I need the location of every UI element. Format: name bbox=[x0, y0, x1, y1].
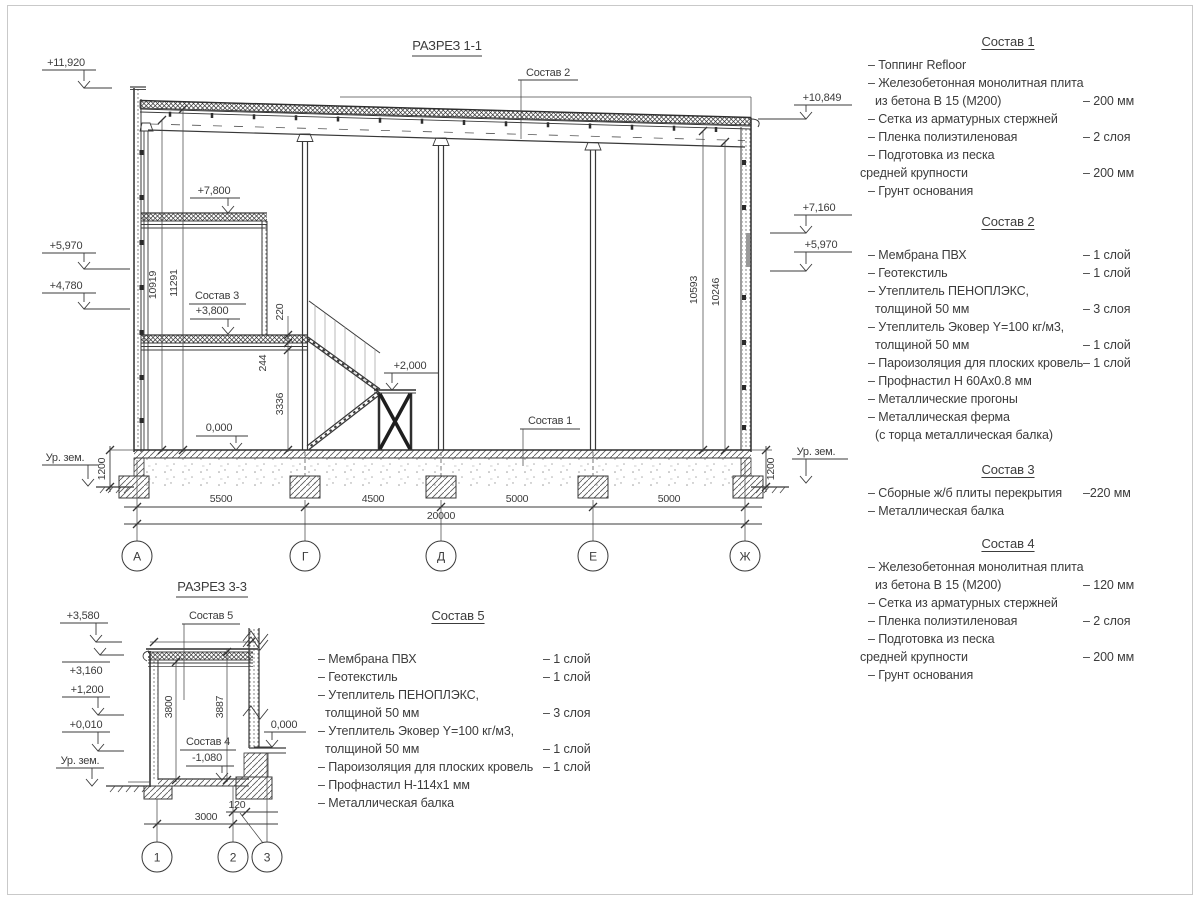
dim-11291: 11291 bbox=[168, 269, 180, 297]
right-wall bbox=[741, 118, 751, 453]
composition-item: – Утеплитель ПЕНОПЛЭКС, bbox=[858, 284, 1158, 302]
composition-item-text: – Пароизоляция для плоских кровель bbox=[318, 760, 533, 775]
composition-item-text: – Утеплитель ПЕНОПЛЭКС, bbox=[868, 284, 1029, 299]
dim-120: 120 bbox=[229, 799, 246, 811]
axis-label-e: Е bbox=[589, 550, 597, 564]
ground-level-label-right: Ур. зем. bbox=[797, 446, 836, 458]
dim-220: 220 bbox=[274, 303, 286, 320]
composition-item-text: – Подготовка из песка bbox=[868, 148, 994, 163]
composition-item-text: – Утеплитель Эковер Y=100 кг/м3, bbox=[318, 724, 514, 739]
dim-10246: 10246 bbox=[710, 278, 722, 307]
composition-item: толщиной 50 мм– 3 слоя bbox=[858, 302, 1158, 320]
dim-3800: 3800 bbox=[163, 695, 175, 718]
section-3-3-title: РАЗРЕЗ 3-3 bbox=[177, 579, 247, 594]
composition-item-text: толщиной 50 мм bbox=[325, 742, 419, 757]
composition-item: – Утеплитель ПЕНОПЛЭКС, bbox=[308, 688, 608, 706]
composition-item: – Грунт основания bbox=[858, 184, 1158, 202]
composition-item: – Подготовка из песка bbox=[858, 632, 1158, 650]
composition-item-value: – 200 мм bbox=[1083, 94, 1134, 109]
composition-item-text: – Пленка полиэтиленовая bbox=[868, 130, 1017, 145]
composition-block-2: Состав 2 – Мембрана ПВХ– 1 слой– Геотекс… bbox=[858, 210, 1158, 446]
composition-item-text: средней крупности bbox=[860, 166, 968, 181]
composition-item-text: – Пленка полиэтиленовая bbox=[868, 614, 1017, 629]
section-3-3-drawing: РАЗРЕЗ 3-3 bbox=[56, 579, 306, 872]
section-1-1-drawing: 10919 11291 10593 10246 220 244 3336 120… bbox=[42, 38, 852, 571]
dim-1200-right: 1200 bbox=[765, 457, 777, 480]
label-sostav-2: Состав 2 bbox=[526, 67, 570, 79]
composition-item-text: – Профнастил Н-114х1 мм bbox=[318, 778, 470, 793]
axis-label-3: 3 bbox=[264, 851, 271, 865]
composition-item: из бетона В 15 (М200)– 200 мм bbox=[858, 94, 1158, 112]
axis-label-d: Д bbox=[437, 550, 445, 564]
label-sostav-3: Состав 3 bbox=[195, 290, 239, 302]
composition-item-text: из бетона В 15 (М200) bbox=[875, 94, 1001, 109]
composition-item-text: (с торца металлическая балка) bbox=[875, 428, 1053, 443]
axis-label-a: А bbox=[133, 550, 141, 564]
elevation-5970-left: +5,970 bbox=[50, 240, 83, 252]
composition-item: – Металлическая балка bbox=[308, 796, 608, 814]
composition-item-value: – 200 мм bbox=[1083, 650, 1134, 665]
composition-item-value: – 2 слоя bbox=[1083, 614, 1130, 629]
composition-item: – Металлические прогоны bbox=[858, 392, 1158, 410]
composition-item-text: толщиной 50 мм bbox=[875, 302, 969, 317]
composition-item-text: – Грунт основания bbox=[868, 668, 973, 683]
composition-item: – Грунт основания bbox=[858, 668, 1158, 686]
dim-5000-b: 5000 bbox=[658, 493, 681, 505]
axis-label-zh: Ж bbox=[740, 550, 751, 564]
composition-item-value: – 1 слой bbox=[1083, 266, 1131, 281]
composition-item-text: – Подготовка из песка bbox=[868, 632, 994, 647]
composition-item-value: – 200 мм bbox=[1083, 166, 1134, 181]
composition-item: – Мембрана ПВХ– 1 слой bbox=[308, 652, 608, 670]
composition-item-text: толщиной 50 мм bbox=[875, 338, 969, 353]
composition-rows: – Мембрана ПВХ– 1 слой– Геотекстиль– 1 с… bbox=[858, 248, 1158, 446]
dim-3000: 3000 bbox=[195, 811, 218, 823]
floor-foundation bbox=[96, 450, 789, 498]
composition-item: средней крупности– 200 мм bbox=[858, 650, 1158, 668]
left-wall bbox=[130, 87, 153, 452]
composition-item: – Пароизоляция для плоских кровель– 1 сл… bbox=[308, 760, 608, 778]
composition-item: – Утеплитель Эковер Y=100 кг/м3, bbox=[308, 724, 608, 742]
composition-item: – Железобетонная монолитная плита bbox=[858, 560, 1158, 578]
composition-item: – Пленка полиэтиленовая– 2 слоя bbox=[858, 130, 1158, 148]
composition-rows: – Мембрана ПВХ– 1 слой– Геотекстиль– 1 с… bbox=[308, 652, 608, 814]
composition-item: – Пленка полиэтиленовая– 2 слоя bbox=[858, 614, 1158, 632]
composition-item-value: –220 мм bbox=[1083, 486, 1131, 501]
elevation-0000-33: 0,000 bbox=[271, 719, 298, 731]
pit-labels: Состав 5 Состав 4 bbox=[180, 610, 240, 750]
composition-item: – Профнастил Н-114х1 мм bbox=[308, 778, 608, 796]
elevation-3580: +3,580 bbox=[67, 610, 100, 622]
composition-item-text: – Мембрана ПВХ bbox=[868, 248, 966, 263]
elevation-10849: +10,849 bbox=[803, 92, 842, 104]
composition-item-text: – Геотекстиль bbox=[318, 670, 398, 685]
composition-item-text: – Металлическая ферма bbox=[868, 410, 1010, 425]
dim-3887: 3887 bbox=[214, 695, 226, 718]
elevation-11920: +11,920 bbox=[47, 57, 85, 69]
composition-item-text: – Утеплитель ПЕНОПЛЭКС, bbox=[318, 688, 479, 703]
elevation-7160: +7,160 bbox=[803, 202, 836, 214]
composition-rows: – Топпинг Refloor– Железобетонная моноли… bbox=[858, 58, 1158, 202]
dim-3336: 3336 bbox=[274, 392, 286, 415]
composition-item-text: – Сборные ж/б плиты перекрытия bbox=[868, 486, 1062, 501]
pit-elevation-marks: +3,580 +3,160 +1,200 +0,010 Ур. зем. 0,0… bbox=[56, 610, 306, 786]
composition-item: – Геотекстиль– 1 слой bbox=[858, 266, 1158, 284]
composition-item: – Мембрана ПВХ– 1 слой bbox=[858, 248, 1158, 266]
dim-10919: 10919 bbox=[147, 271, 159, 300]
elevation-3160: +3,160 bbox=[70, 665, 103, 677]
composition-item-value: – 1 слой bbox=[1083, 338, 1131, 353]
dim-5000-a: 5000 bbox=[506, 493, 529, 505]
composition-item-text: – Профнастил Н 60Ах0.8 мм bbox=[868, 374, 1032, 389]
composition-item-value: – 1 слой bbox=[543, 742, 591, 757]
composition-item-value: – 2 слоя bbox=[1083, 130, 1130, 145]
elevation-2000: +2,000 bbox=[394, 360, 427, 372]
composition-item: – Сетка из арматурных стержней bbox=[858, 112, 1158, 130]
dim-10593: 10593 bbox=[688, 276, 700, 305]
composition-item: – Подготовка из песка bbox=[858, 148, 1158, 166]
composition-item: (с торца металлическая балка) bbox=[858, 428, 1158, 446]
composition-rows: – Сборные ж/б плиты перекрытия–220 мм– М… bbox=[858, 486, 1158, 522]
axis-label-2: 2 bbox=[230, 851, 237, 865]
composition-item-text: – Мембрана ПВХ bbox=[318, 652, 416, 667]
pit-structure bbox=[106, 628, 286, 799]
composition-item: – Утеплитель Эковер Y=100 кг/м3, bbox=[858, 320, 1158, 338]
composition-block-4: Состав 4 – Железобетонная монолитная пли… bbox=[858, 532, 1158, 686]
composition-item: – Профнастил Н 60Ах0.8 мм bbox=[858, 374, 1158, 392]
composition-item-text: – Железобетонная монолитная плита bbox=[868, 560, 1083, 575]
drawing-page: 10919 11291 10593 10246 220 244 3336 120… bbox=[0, 0, 1200, 900]
composition-item-text: – Пароизоляция для плоских кровель bbox=[868, 356, 1083, 371]
composition-item: толщиной 50 мм– 1 слой bbox=[308, 742, 608, 760]
axis-label-g: Г bbox=[302, 550, 309, 564]
composition-title: Состав 4 bbox=[858, 532, 1158, 552]
composition-item-text: из бетона В 15 (М200) bbox=[875, 578, 1001, 593]
composition-block-1: Состав 1 – Топпинг Refloor– Железобетонн… bbox=[858, 30, 1158, 202]
composition-item-value: – 3 слоя bbox=[543, 706, 590, 721]
roof-assembly bbox=[140, 97, 759, 147]
ground-level-label-left: Ур. зем. bbox=[46, 452, 85, 464]
composition-item-text: – Сетка из арматурных стержней bbox=[868, 112, 1058, 127]
elevation-0010: +0,010 bbox=[70, 719, 103, 731]
label-sostav-4: Состав 4 bbox=[186, 736, 230, 748]
composition-item: средней крупности– 200 мм bbox=[858, 166, 1158, 184]
composition-block-3: Состав 3 – Сборные ж/б плиты перекрытия–… bbox=[858, 458, 1158, 522]
label-sostav-1: Состав 1 bbox=[528, 415, 572, 427]
composition-item-value: – 3 слоя bbox=[1083, 302, 1130, 317]
composition-item-value: – 1 слой bbox=[543, 760, 591, 775]
dim-1200-left: 1200 bbox=[96, 457, 108, 480]
composition-item: из бетона В 15 (М200)– 120 мм bbox=[858, 578, 1158, 596]
elevation-7800: +7,800 bbox=[198, 185, 231, 197]
composition-item: толщиной 50 мм– 3 слоя bbox=[308, 706, 608, 724]
composition-item-value: – 1 слой bbox=[1083, 248, 1131, 263]
composition-item: – Топпинг Refloor bbox=[858, 58, 1158, 76]
elevation-4780: +4,780 bbox=[50, 280, 83, 292]
elevation-5970-right: +5,970 bbox=[805, 239, 838, 251]
composition-item-text: – Металлические прогоны bbox=[868, 392, 1018, 407]
roof-drip-hook bbox=[751, 119, 759, 127]
composition-item-text: – Грунт основания bbox=[868, 184, 973, 199]
composition-title: Состав 5 bbox=[308, 604, 608, 624]
composition-item-value: – 1 слой bbox=[543, 670, 591, 685]
composition-item: – Металлическая балка bbox=[858, 504, 1158, 522]
label-sostav-5: Состав 5 bbox=[189, 610, 233, 622]
ground-level-label-33: Ур. зем. bbox=[61, 755, 100, 767]
composition-item-text: – Геотекстиль bbox=[868, 266, 948, 281]
composition-title: Состав 2 bbox=[858, 210, 1158, 230]
composition-item-value: – 1 слой bbox=[1083, 356, 1131, 371]
composition-item: – Пароизоляция для плоских кровель– 1 сл… bbox=[858, 356, 1158, 374]
composition-item-text: – Металлическая балка bbox=[318, 796, 454, 811]
elevation-minus-1080: -1,080 bbox=[192, 752, 222, 764]
composition-item-text: – Металлическая балка bbox=[868, 504, 1004, 519]
composition-item: – Сетка из арматурных стержней bbox=[858, 596, 1158, 614]
wall-insert-plate bbox=[746, 233, 750, 267]
composition-item: толщиной 50 мм– 1 слой bbox=[858, 338, 1158, 356]
section-1-1-title: РАЗРЕЗ 1-1 bbox=[412, 38, 482, 53]
composition-title: Состав 1 bbox=[858, 30, 1158, 50]
composition-item-text: – Сетка из арматурных стержней bbox=[868, 596, 1058, 611]
dim-4500: 4500 bbox=[362, 493, 385, 505]
elevation-0000: 0,000 bbox=[206, 422, 233, 434]
composition-item-text: средней крупности bbox=[860, 650, 968, 665]
elevation-1200: +1,200 bbox=[71, 684, 104, 696]
composition-title: Состав 3 bbox=[858, 458, 1158, 478]
dim-5500: 5500 bbox=[210, 493, 233, 505]
composition-item-text: – Железобетонная монолитная плита bbox=[868, 76, 1083, 91]
composition-item: – Сборные ж/б плиты перекрытия–220 мм bbox=[858, 486, 1158, 504]
composition-block-5: Состав 5 – Мембрана ПВХ– 1 слой– Геотекс… bbox=[308, 604, 608, 814]
dim-20000: 20000 bbox=[427, 510, 456, 522]
composition-item-text: – Утеплитель Эковер Y=100 кг/м3, bbox=[868, 320, 1064, 335]
dim-244: 244 bbox=[257, 354, 269, 371]
axis-label-1: 1 bbox=[154, 851, 161, 865]
composition-item-value: – 120 мм bbox=[1083, 578, 1134, 593]
composition-item: – Железобетонная монолитная плита bbox=[858, 76, 1158, 94]
elevation-3800: +3,800 bbox=[196, 305, 229, 317]
composition-item-text: толщиной 50 мм bbox=[325, 706, 419, 721]
composition-item: – Металлическая ферма bbox=[858, 410, 1158, 428]
composition-item-text: – Топпинг Refloor bbox=[868, 58, 966, 73]
staircase bbox=[307, 301, 416, 450]
composition-item-value: – 1 слой bbox=[543, 652, 591, 667]
composition-item: – Геотекстиль– 1 слой bbox=[308, 670, 608, 688]
composition-rows: – Железобетонная монолитная плитаиз бето… bbox=[858, 560, 1158, 686]
